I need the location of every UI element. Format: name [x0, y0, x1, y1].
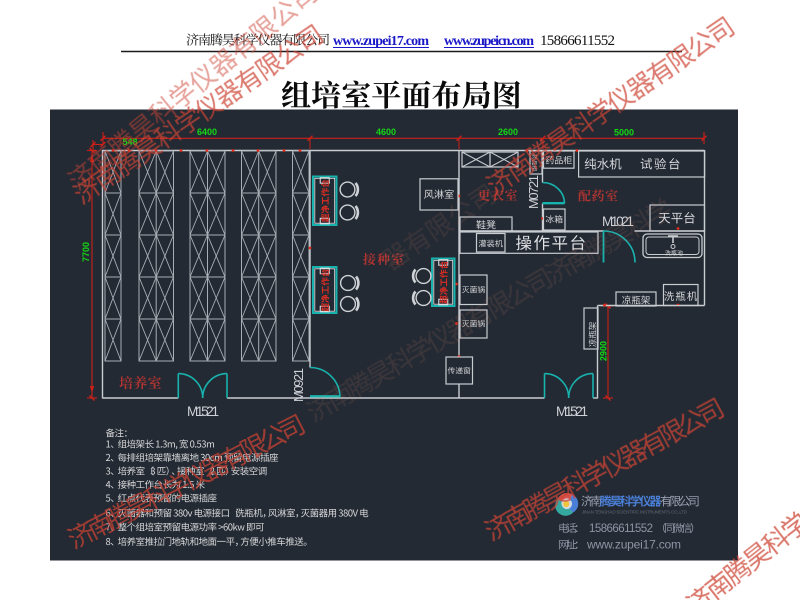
- svg-text:2900: 2900: [599, 341, 609, 361]
- svg-text:5000: 5000: [614, 128, 634, 138]
- svg-text:7700: 7700: [81, 242, 91, 262]
- svg-text:4600: 4600: [376, 127, 396, 137]
- svg-text:M1521: M1521: [187, 404, 219, 419]
- svg-text:6400: 6400: [197, 127, 217, 137]
- svg-text:M0721: M0721: [526, 175, 541, 209]
- svg-text:www.zupeicn.com: www.zupeicn.com: [444, 34, 534, 49]
- svg-text:15866611552: 15866611552: [540, 33, 615, 49]
- svg-text:www.zupei17.com: www.zupei17.com: [586, 538, 681, 552]
- svg-text:M1521: M1521: [556, 404, 588, 419]
- svg-text:www.zupei17.com: www.zupei17.com: [333, 34, 429, 49]
- svg-text:2600: 2600: [498, 127, 518, 137]
- svg-text:15866611552: 15866611552: [589, 523, 653, 535]
- svg-text:JINAN TENGHAO SCIENTIFIC INSTR: JINAN TENGHAO SCIENTIFIC INSTRUMENTS CO.…: [582, 510, 688, 515]
- svg-text:M0921: M0921: [291, 368, 306, 402]
